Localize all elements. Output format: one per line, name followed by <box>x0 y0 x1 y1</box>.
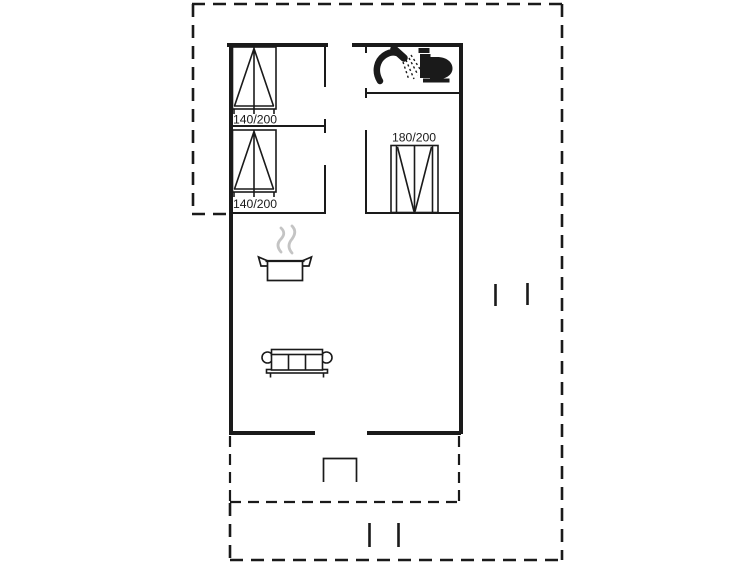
cooking-pot-icon <box>259 257 312 281</box>
bed-label-lower: 140/200 <box>233 197 277 211</box>
opening-marker-bottom <box>370 523 399 547</box>
bed-140x200-lower <box>233 130 277 197</box>
entrance-step-icon <box>324 459 357 483</box>
floorplan-page: 140/200 140/200 180/200 <box>0 0 755 566</box>
bed-140x200-upper <box>233 47 277 114</box>
steam-icon <box>278 226 295 253</box>
sofa-icon <box>262 350 332 378</box>
floorplan-canvas: 140/200 140/200 180/200 <box>0 0 755 566</box>
bed-180x200 <box>391 146 438 213</box>
bed-label-upper: 140/200 <box>233 113 277 127</box>
bed-label-double: 180/200 <box>392 131 436 145</box>
opening-marker-right <box>496 283 528 306</box>
terrace-outline <box>230 436 459 502</box>
toilet-icon <box>419 48 453 83</box>
shower-icon <box>377 49 420 81</box>
